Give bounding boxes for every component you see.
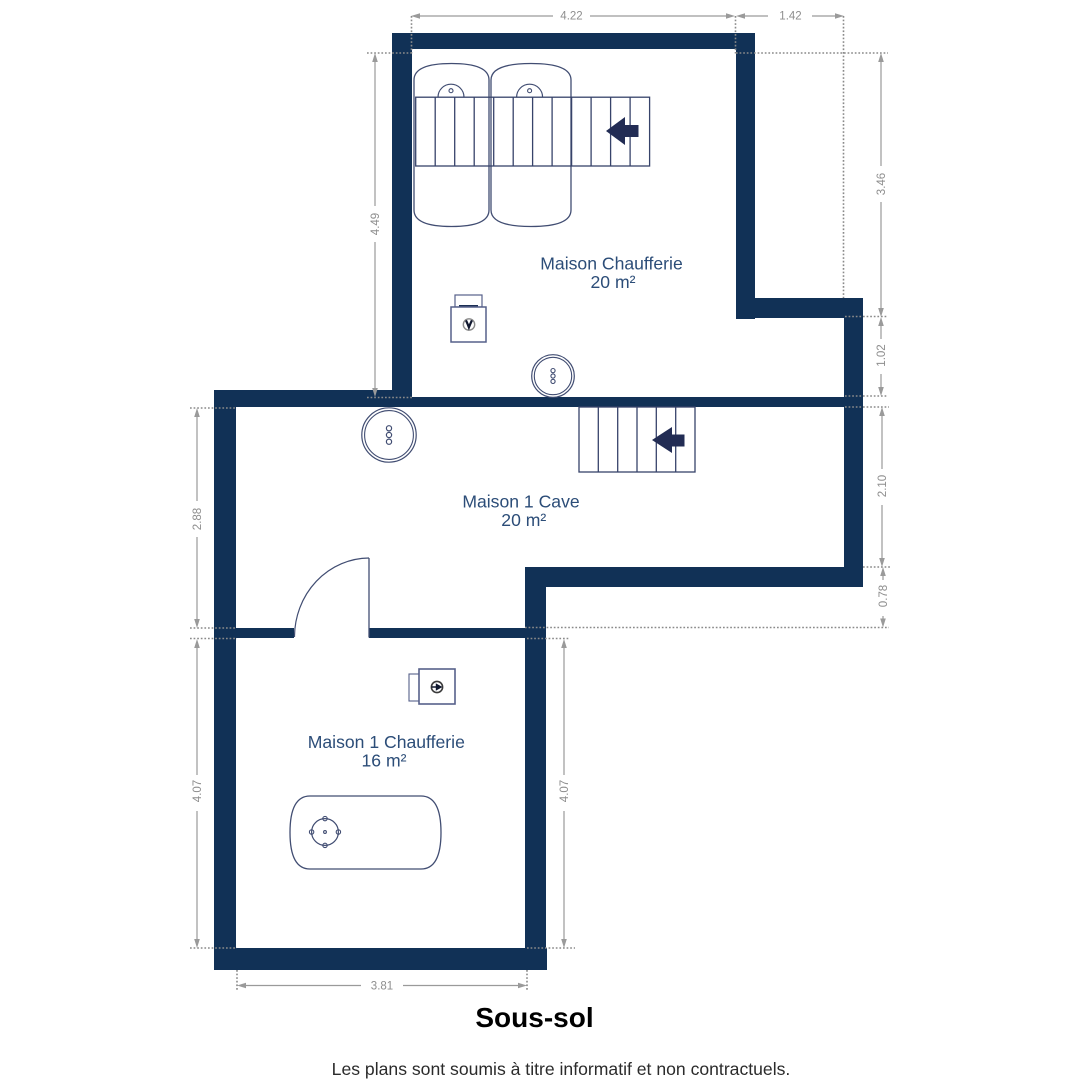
svg-text:4.49: 4.49 (370, 213, 382, 235)
svg-text:4.07: 4.07 (192, 780, 204, 802)
svg-text:Sous-sol: Sous-sol (475, 1002, 593, 1033)
svg-text:20 m²: 20 m² (591, 272, 636, 292)
svg-text:Maison 1 Chaufferie: Maison 1 Chaufferie (308, 732, 465, 752)
svg-text:3.81: 3.81 (371, 981, 393, 993)
svg-text:1.02: 1.02 (876, 344, 888, 366)
svg-text:4.07: 4.07 (559, 780, 571, 802)
svg-text:Les plans sont soumis à titre: Les plans sont soumis à titre informatif… (332, 1059, 791, 1079)
svg-text:0.78: 0.78 (878, 585, 890, 607)
svg-text:2.10: 2.10 (877, 475, 889, 497)
svg-text:3.46: 3.46 (876, 173, 888, 195)
svg-text:2.88: 2.88 (192, 508, 204, 530)
svg-text:16 m²: 16 m² (362, 751, 407, 771)
svg-text:4.22: 4.22 (560, 11, 582, 23)
svg-text:20 m²: 20 m² (501, 510, 546, 530)
svg-text:Maison Chaufferie: Maison Chaufferie (540, 254, 682, 274)
svg-text:1.42: 1.42 (779, 11, 801, 23)
svg-text:Maison 1 Cave: Maison 1 Cave (462, 492, 579, 512)
